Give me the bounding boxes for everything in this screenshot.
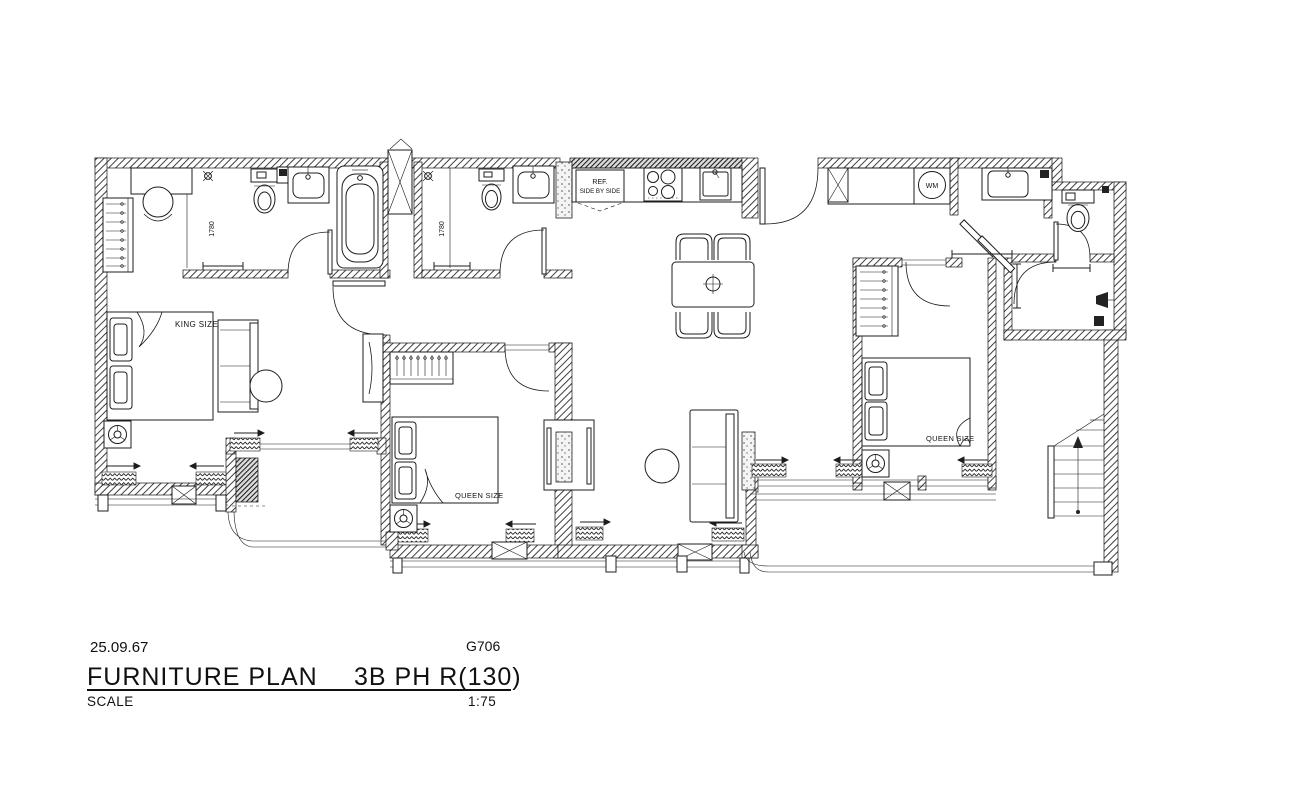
dining-chair xyxy=(676,234,712,260)
planter xyxy=(236,458,258,502)
wardrobe-1 xyxy=(103,198,133,272)
living-room xyxy=(645,410,738,522)
shower-door-rail-1 xyxy=(203,262,243,270)
ac-unit-3 xyxy=(862,450,889,477)
bathroom-1 xyxy=(187,166,383,270)
ac-unit-1 xyxy=(104,421,131,448)
wardrobe-3 xyxy=(856,266,898,336)
drawing-date: 25.09.67 xyxy=(90,639,148,656)
wardrobe-2 xyxy=(390,352,453,384)
stool xyxy=(143,187,173,217)
king-bed: KING SIZE xyxy=(107,312,218,420)
balcony-railing-1 xyxy=(228,506,398,550)
balcony-door-bedroom3 xyxy=(884,482,910,500)
king-bed-label: KING SIZE xyxy=(175,320,218,329)
bedroom3-door xyxy=(902,260,950,306)
bedroom-2: QUEEN SIZE xyxy=(390,352,503,532)
sink-2 xyxy=(513,166,554,203)
scale-value: 1:75 xyxy=(468,694,496,709)
bath3-corner-double-door xyxy=(960,220,1015,273)
bedroom2-door xyxy=(505,345,549,391)
drawing-code: G706 xyxy=(466,638,500,654)
furniture-plan-drawing: WM xyxy=(0,0,1292,809)
dining-chair xyxy=(714,312,750,338)
scale-label: SCALE xyxy=(87,694,134,709)
dining-chair xyxy=(676,312,712,338)
bath1-door xyxy=(288,230,332,274)
shower-head-3 xyxy=(1094,292,1114,326)
master-side-table xyxy=(250,370,282,402)
duct-shaft xyxy=(388,139,412,214)
bathtub xyxy=(337,166,383,268)
stair-rail xyxy=(1048,446,1054,518)
queen-bed-2-label: QUEEN SIZE xyxy=(455,491,503,500)
fridge-label-line1: REF. xyxy=(592,179,607,186)
master-bedroom-door xyxy=(333,281,385,335)
wall-shelf-1 xyxy=(277,167,289,183)
unit-label: 3B PH R(130) xyxy=(354,663,522,691)
shower-dimension-2: 1780 xyxy=(439,221,446,237)
sink-1 xyxy=(288,167,329,203)
sink-3 xyxy=(982,168,1052,200)
shower-dimension-1: 1780 xyxy=(209,221,216,237)
shower-room-door xyxy=(1013,262,1056,308)
balcony-door-master xyxy=(172,486,196,504)
coffee-table xyxy=(645,449,679,483)
shower-mixer-2 xyxy=(423,171,433,181)
sofa xyxy=(690,410,738,522)
dressing-table xyxy=(131,168,192,221)
queen-bed-3-label: QUEEN SIZE xyxy=(926,434,974,443)
master-sofa xyxy=(218,320,258,412)
bedroom-3: QUEEN SIZE xyxy=(856,266,974,477)
master-tv-unit xyxy=(363,334,383,402)
title-block: 25.09.67 G706 FURNITURE PLAN 3B PH R(130… xyxy=(87,638,522,709)
washing-machine-label: WM xyxy=(926,183,939,190)
drawing-title: FURNITURE PLAN xyxy=(87,663,318,691)
utility-area: WM xyxy=(828,168,950,204)
bathroom-2 xyxy=(423,166,554,270)
entry-door xyxy=(760,168,818,224)
balcony-door-bedroom2 xyxy=(492,542,527,559)
toilet-3 xyxy=(1062,186,1109,232)
dining-chair xyxy=(714,234,750,260)
floor-plan-sheet: WM xyxy=(0,0,1292,809)
title-underline xyxy=(87,689,511,691)
bath2-door xyxy=(500,228,546,274)
toilet-2 xyxy=(479,169,504,210)
queen-bed-2: QUEEN SIZE xyxy=(392,417,503,503)
dining-set xyxy=(672,234,754,338)
towel-bar-2 xyxy=(434,262,470,270)
toilet-1 xyxy=(251,169,278,213)
shower-mixer-1 xyxy=(203,171,213,181)
ac-unit-2 xyxy=(390,505,417,532)
shared-tv-console xyxy=(544,420,594,490)
fridge-label-line2: SIDE BY SIDE xyxy=(580,188,620,195)
terrace-railing xyxy=(744,552,1112,575)
bathroom-3 xyxy=(952,168,1114,326)
staircase xyxy=(1048,414,1104,518)
queen-bed-3: QUEEN SIZE xyxy=(862,358,974,446)
towel-bar-3 xyxy=(1053,264,1090,272)
